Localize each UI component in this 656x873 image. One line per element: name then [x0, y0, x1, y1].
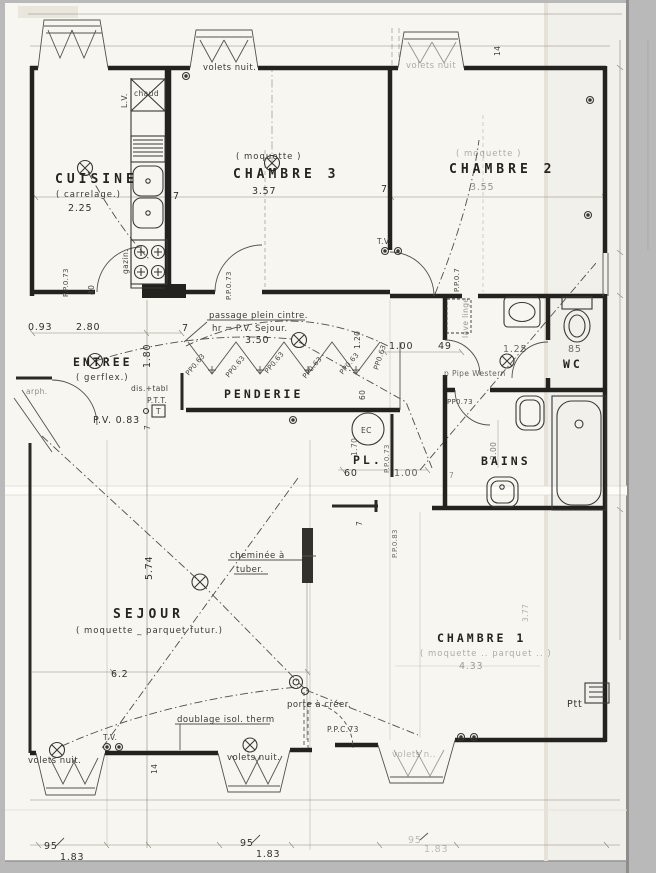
label-chauffe-eau: chaud	[134, 89, 159, 98]
fireplace-flue	[302, 528, 313, 583]
label-lave-linge: lave linge	[461, 298, 470, 338]
dim-95-right: 95	[408, 835, 422, 846]
floor-plan-drawing: volets nuit. volets nuit 14 L.V. chaud C…	[0, 0, 656, 873]
dim-95-mid: 95	[240, 838, 254, 849]
paper-sheet	[5, 3, 627, 861]
dim-574: 5.74	[144, 556, 155, 580]
room-name-placard: PL.	[353, 453, 383, 467]
dim-280: 2.80	[76, 322, 100, 333]
dim-120: 1.20	[353, 331, 362, 349]
room-dim-chambre2: 3.55	[470, 182, 494, 193]
label-volets-top-mid: volets nuit.	[203, 63, 256, 73]
label-cheminee-1: cheminée à	[230, 550, 285, 561]
scanned-floor-plan-page: volets nuit. volets nuit 14 L.V. chaud C…	[0, 0, 656, 873]
dim-093: 0.93	[28, 322, 52, 333]
dim-7-chambre3: 7	[381, 184, 388, 195]
label-eau-chaude: EC	[361, 426, 372, 435]
dim-7-bains: 7	[449, 471, 454, 480]
dim-183-left: 1.83	[60, 852, 84, 863]
label-porte-creer: porte à créer.	[287, 699, 351, 710]
label-passage-2: hr = P.V. Sejour.	[212, 324, 288, 334]
label-cheminee-2: tuber.	[236, 565, 264, 575]
label-doublage: doublage isol. therm	[177, 715, 275, 725]
label-volets-bottom-mid: volets nuit.	[227, 753, 280, 763]
dim-100-placard: 1.00	[394, 468, 418, 479]
label-tv-top: T.V.	[376, 237, 391, 246]
dim-100-hall: 1.00	[389, 341, 413, 352]
room-material-sejour: ( moquette _ parquet futur.)	[76, 626, 223, 636]
dim-7-kitchen: 7	[173, 191, 180, 202]
dim-95-left: 95	[44, 841, 58, 852]
room-name-chambre3: CHAMBRE 3	[233, 167, 339, 182]
room-material-cuisine: ( carrelage.)	[56, 190, 121, 200]
label-gaziniere: gazin.	[121, 249, 130, 274]
label-lave-vaisselle: L.V.	[120, 93, 129, 108]
label-pipe: p Pipe Western	[444, 369, 506, 378]
label-tv-bottom: T.V.	[102, 733, 117, 742]
room-name-chambre2: CHAMBRE 2	[449, 162, 555, 177]
door-label-pp073-chambre3: P.P.0.73	[225, 271, 233, 300]
room-dim-cuisine: 2.25	[68, 203, 92, 214]
dim-183-right: 1.83	[424, 844, 448, 855]
label-volets-top-right: volets nuit	[406, 61, 456, 71]
dim-40: 40	[87, 285, 96, 295]
dim-14-bottom: 14	[150, 764, 159, 774]
room-material-entree: ( gerflex.)	[76, 373, 129, 383]
room-name-entree: ENTREE	[73, 355, 133, 369]
dim-125: 1.25	[503, 344, 527, 355]
door-label-pp073-cuisine: P.P.0.73	[62, 268, 70, 297]
room-dim-chambre1: 4.33	[459, 661, 483, 672]
horizontal-fold-crease	[5, 486, 627, 495]
room-name-chambre1: CHAMBRE 1	[437, 631, 526, 645]
dim-180: 1.80	[142, 344, 153, 368]
dim-7-stub: 7	[355, 521, 364, 526]
room-name-sejour: SEJOUR	[113, 607, 184, 622]
dim-350: 3.50	[245, 335, 269, 346]
door-label-pp07-chambre2: P.P.0.7	[453, 268, 461, 292]
door-label-pv083: P.V. 0.83	[93, 415, 140, 426]
room-dim-chambre3: 3.57	[252, 186, 276, 197]
label-ptt-chambre1: Ptt	[567, 699, 583, 710]
door-label-pp083: P.P.0.83	[391, 529, 399, 558]
label-ptt-box: T	[155, 407, 161, 416]
label-arph: arph.	[26, 387, 48, 396]
label-volets-bottom-right: volets n..	[392, 750, 436, 760]
room-name-penderie: PENDERIE	[224, 387, 303, 401]
vertical-fold-crease	[544, 3, 548, 861]
dim-14-top: 14	[493, 46, 502, 56]
dim-62: 6.2	[111, 669, 129, 680]
label-volets-bottom-left: volets nuit.	[28, 756, 81, 766]
dim-7-entree: 7	[182, 323, 189, 334]
label-dis-tabl: dis.+tabl	[131, 384, 168, 393]
dim-85: 85	[568, 344, 582, 355]
door-label-pp073-bains: PP0.73	[447, 398, 473, 406]
dim-60-placard: 60	[344, 468, 358, 479]
dim-200: 2.00	[489, 442, 498, 460]
room-name-wc: WC	[563, 357, 583, 371]
room-material-chambre2: ( moquette )	[456, 149, 521, 159]
room-name-cuisine: CUISINE	[55, 172, 138, 187]
label-passage-1: passage plein cintre.	[209, 311, 308, 321]
wall-pier	[142, 284, 186, 298]
door-label-pp073-placard: P.P.0.73	[383, 444, 391, 473]
room-material-chambre1: ( moquette .. parquet .. )	[420, 649, 552, 659]
dim-183-mid: 1.83	[256, 849, 280, 860]
dim-377: 3.77	[521, 604, 530, 622]
dim-49: 49	[438, 341, 452, 352]
room-material-chambre3: ( moquette )	[236, 152, 301, 162]
dim-7-pv: 7	[143, 425, 152, 430]
door-label-ppc73: P.P.C.73	[327, 725, 359, 734]
dim-60-penderie: 60	[358, 390, 367, 400]
label-ptt-entree: P.T.T.	[147, 396, 167, 405]
